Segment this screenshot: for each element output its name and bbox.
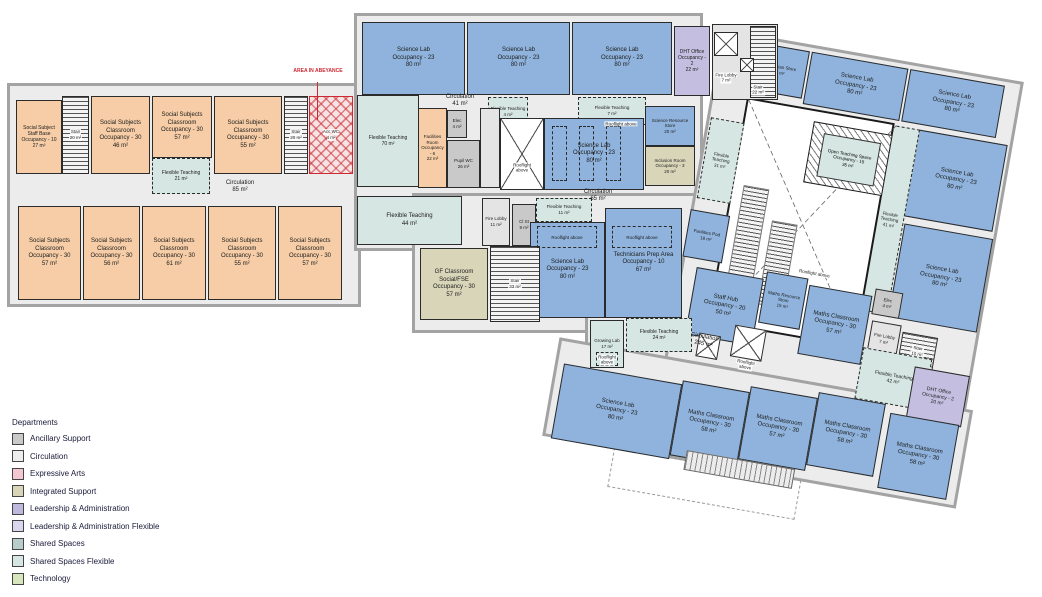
- room-label-line: 58 m²: [909, 459, 925, 469]
- legend-swatch: [12, 503, 24, 515]
- room-label-line: 80 m²: [607, 414, 623, 424]
- room-label-line: Science Lab: [551, 259, 584, 267]
- room-label-line: Social Subjects Classroom: [280, 238, 340, 253]
- lift-shaft-icon: [714, 32, 738, 56]
- room-label-line: 57 m²: [42, 261, 57, 269]
- room-flexible-teaching-24: Flexible Teaching24 m²: [626, 318, 692, 352]
- legend-swatch: [12, 555, 24, 567]
- room-label-line: 56 m²: [104, 261, 119, 269]
- room-label-line: 4 m²: [327, 135, 336, 141]
- room-label-line: 80 m²: [511, 62, 526, 70]
- rooflight-dashed-box: [552, 126, 567, 181]
- room-label-line: 18 m²: [700, 235, 712, 243]
- room-label-line: 20 m²: [930, 399, 944, 407]
- room-social-subjects-classroom-46: Social Subjects ClassroomOccupancy - 304…: [91, 96, 150, 174]
- locker-strip: [480, 108, 500, 188]
- room-label-line: 57 m²: [302, 261, 317, 269]
- room-label-line: 7 m²: [608, 111, 617, 117]
- room-label-line: Social Subjects Classroom: [144, 238, 204, 253]
- room-dht-office-22: DHT OfficeOccupancy - 222 m²: [674, 26, 710, 96]
- room-social-subjects-classroom-56: Social Subjects ClassroomOccupancy - 305…: [83, 206, 140, 300]
- room-label-line: 57 m²: [174, 135, 189, 143]
- room-label-line: Occupancy - 30: [99, 135, 141, 143]
- lift-shaft-icon: [695, 333, 721, 360]
- rooflight-dashed-box: [596, 352, 618, 366]
- room-maths-classroom-c: Maths ClassroomOccupancy - 3057 m²: [738, 386, 818, 471]
- room-label-line: 24 m²: [653, 335, 666, 341]
- room-label-line: 80 m²: [560, 274, 575, 282]
- legend-item-label: Technology: [30, 574, 70, 583]
- room-label-line: Rooflight above: [551, 235, 582, 240]
- room-label-line: Social Subjects Classroom: [216, 120, 280, 135]
- room-label-line: 27 m²: [33, 143, 46, 149]
- room-label-line: Science Lab: [397, 47, 430, 55]
- legend-item-integrated-support: Integrated Support: [12, 485, 159, 498]
- room-label-line: 46 m²: [113, 143, 128, 151]
- legend-item-label: Ancillary Support: [30, 434, 90, 443]
- abeyance-annotation: AREA IN ABEYANCE: [292, 68, 344, 75]
- room-label-line: 55 m²: [240, 143, 255, 151]
- room-fire-lobby-11: Fire Lobby11 m²: [482, 198, 510, 246]
- room-label-line: 4 m²: [882, 303, 892, 310]
- rooflight-void: [730, 325, 767, 362]
- room-social-subjects-classroom-55b: Social Subjects ClassroomOccupancy - 305…: [208, 206, 276, 300]
- room-label-line: 31 m²: [713, 162, 725, 170]
- room-label-line: 57 m²: [446, 292, 461, 300]
- room-label-line: 35 m²: [842, 161, 854, 168]
- legend-swatch: [12, 520, 24, 532]
- room-label-line: 80 m²: [846, 89, 862, 99]
- room-label-line: 33 m²: [508, 284, 522, 290]
- room-label-line: Science Resource Store: [647, 118, 693, 129]
- room-maths-classroom-a: Maths ClassroomOccupancy - 3057 m²: [797, 285, 872, 365]
- room-label-line: 7 m²: [879, 339, 889, 346]
- room-social-subjects-classroom-57c: Social Subjects ClassroomOccupancy - 305…: [278, 206, 342, 300]
- room-flexible-teaching-21: Flexible Teaching21 m²: [152, 158, 210, 194]
- room-label-line: 15 m²: [776, 302, 788, 310]
- room-label-line: 80 m²: [931, 280, 947, 290]
- room-label-line: 55 m²: [234, 261, 249, 269]
- rooflight-dashed-box: [606, 126, 621, 181]
- room-label-line: Occupancy - 6: [420, 145, 445, 156]
- lift-shaft-icon: [740, 58, 754, 72]
- room-flexible-teaching-70: Flexible Teaching70 m²: [357, 95, 419, 187]
- room-label-line: 22 m²: [686, 67, 699, 73]
- room-label-line: 20 m²: [664, 129, 676, 135]
- room-label-line: 67 m²: [636, 267, 651, 275]
- room-label-line: Occupancy - 30: [221, 253, 263, 261]
- room-label-line: 57 m²: [825, 327, 841, 337]
- legend-item-label: Circulation: [30, 452, 68, 461]
- room-label-line: 20 m²: [664, 169, 676, 175]
- room-science-resource-store: Science Resource Store20 m²: [645, 106, 695, 146]
- legend-item-expressive-arts: Expressive Arts: [12, 467, 159, 480]
- room-label-line: Occupancy - 30: [227, 135, 269, 143]
- room-facilities-pod: Facilities Pod18 m²: [682, 209, 730, 263]
- legend-item-label: Expressive Arts: [30, 469, 85, 478]
- room-label-line: 21 m²: [175, 176, 188, 182]
- room-technicians-prep-area: Technicians Prep AreaOccupancy - 1067 m²: [605, 208, 682, 318]
- legend-item-shared-spaces: Shared Spaces: [12, 537, 159, 550]
- room-label-line: 9 m²: [520, 225, 529, 231]
- room-area-in-abeyance: Acc WC4 m²: [309, 96, 353, 174]
- room-social-subjects-classroom-55a: Social Subjects ClassroomOccupancy - 305…: [214, 96, 282, 174]
- room-label-line: Social Subjects Classroom: [85, 238, 138, 253]
- room-label-line: Science Lab: [502, 47, 535, 55]
- legend-item-circulation: Circulation: [12, 450, 159, 463]
- legend-item-leadership-administration: Leadership & Administration: [12, 502, 159, 515]
- room-label-line: Flexible Teaching: [386, 213, 432, 221]
- room-label-line: 41 m²: [882, 222, 894, 230]
- room-open-teaching-space: Open Teaching SpaceOccupancy - 1535 m²: [816, 133, 881, 186]
- room-label-line: 4 m²: [504, 112, 513, 118]
- room-label-line: Social Subjects Classroom: [20, 238, 79, 253]
- legend-item-label: Leadership & Administration Flexible: [30, 522, 159, 531]
- room-label-line: 58 m²: [700, 426, 716, 436]
- room-inclusion-room: Inclusion RoomOccupancy - 320 m²: [645, 146, 695, 186]
- room-label-line: 11 m²: [558, 210, 569, 216]
- room-label-line: 80 m²: [614, 62, 629, 70]
- legend-swatch: [12, 468, 24, 480]
- room-science-lab-3: Science LabOccupancy - 2380 m²: [572, 22, 672, 95]
- room-label-line: 11 m²: [490, 222, 501, 228]
- legend-item-label: Shared Spaces: [30, 539, 85, 548]
- room-social-subjects-classroom-57b: Social Subjects ClassroomOccupancy - 305…: [18, 206, 81, 300]
- rooflight-dashed-box: Rooflight above: [612, 226, 672, 248]
- room-label-line: 44 m²: [402, 221, 417, 229]
- legend-swatch: [12, 485, 24, 497]
- room-label-line: 61 m²: [166, 261, 181, 269]
- room-label-line: Facilities Room: [420, 134, 445, 145]
- room-facilities-room: Facilities RoomOccupancy - 622 m²: [418, 108, 447, 188]
- room-label-line: Occupancy - 30: [161, 127, 203, 135]
- room-label-line: Occupancy - 2: [676, 55, 708, 68]
- room-label-line: 17 m²: [601, 344, 613, 350]
- room-label-line: 20 m²: [289, 135, 303, 141]
- room-label-line: Occupancy - 10: [622, 259, 664, 267]
- room-science-lab-d: Science LabOccupancy - 2380 m²: [888, 223, 993, 332]
- rooflight-void: [500, 118, 544, 190]
- room-social-subject-staff-base: Social Subject Staff BaseOccupancy - 102…: [16, 100, 62, 174]
- room-flexible-teaching-44: Flexible Teaching44 m²: [357, 196, 462, 245]
- room-social-subjects-classroom-61: Social Subjects ClassroomOccupancy - 306…: [142, 206, 206, 300]
- room-science-lab-c: Science LabOccupancy - 2380 m²: [904, 130, 1008, 232]
- legend-swatch: [12, 573, 24, 585]
- room-label-line: Technicians Prep Area: [614, 252, 674, 260]
- room-maths-resource-store: Maths Resource Store15 m²: [758, 271, 808, 330]
- room-label-line: 70 m²: [382, 141, 395, 147]
- room-label-line: 80 m²: [944, 106, 960, 116]
- room-label-line: Social Subjects Classroom: [210, 238, 274, 253]
- room-social-subjects-classroom-57a: Social Subjects ClassroomOccupancy - 305…: [152, 96, 212, 158]
- rooflight-dashed-box: [579, 126, 594, 181]
- room-gf-classroom-social-fse: GF Classroom Social/FSEOccupancy - 3057 …: [420, 248, 488, 320]
- room-pupil-wc: Pupil WC26 m²: [447, 140, 480, 188]
- room-elec-4b: Elec4 m²: [871, 288, 903, 318]
- abeyance-leader-line: [317, 82, 318, 120]
- room-label-line: GF Classroom Social/FSE: [422, 269, 486, 284]
- room-label-line: Occupancy - 30: [153, 253, 195, 261]
- room-label-line: Occupancy - 23: [601, 55, 643, 63]
- room-stair-33: Stair33 m²: [490, 246, 540, 322]
- room-maths-classroom-e: Maths ClassroomOccupancy - 3058 m²: [877, 413, 959, 500]
- room-label-line: 4 m²: [453, 124, 462, 130]
- legend: Departments Ancillary Support Circulatio…: [12, 418, 159, 585]
- room-label-line: 80 m²: [946, 183, 962, 193]
- room-label-line: Social Subjects Classroom: [154, 112, 210, 127]
- legend-item-label: Integrated Support: [30, 487, 96, 496]
- legend-title: Departments: [12, 418, 159, 427]
- room-label-line: Occupancy - 30: [28, 253, 70, 261]
- legend-swatch: [12, 433, 24, 445]
- room-flexible-teaching-11: Flexible Teaching11 m²: [536, 198, 592, 222]
- room-label-line: Occupancy - 30: [433, 284, 475, 292]
- room-maths-classroom-d: Maths ClassroomOccupancy - 3058 m²: [806, 392, 886, 477]
- room-stair-left-1: Stair20 m²: [62, 96, 89, 174]
- room-label-line: Occupancy - 30: [90, 253, 132, 261]
- room-label-line: Social Subjects Classroom: [93, 120, 148, 135]
- legend-item-shared-spaces-flexible: Shared Spaces Flexible: [12, 555, 159, 568]
- room-science-lab-2: Science LabOccupancy - 2380 m²: [467, 22, 570, 95]
- room-label-line: 26 m²: [458, 164, 470, 170]
- room-label-line: 42 m²: [886, 378, 900, 386]
- room-science-lab-1: Science LabOccupancy - 2380 m²: [362, 22, 465, 95]
- legend-item-label: Leadership & Administration: [30, 504, 130, 513]
- room-label-line: Occupancy - 23: [546, 266, 588, 274]
- room-label-line: 58 m²: [836, 437, 852, 447]
- floor-plan-canvas: Social Subject Staff BaseOccupancy - 102…: [0, 0, 1042, 597]
- legend-item-leadership-administration-flexible: Leadership & Administration Flexible: [12, 520, 159, 533]
- room-label-line: Social Subject Staff Base: [18, 125, 60, 138]
- room-label-line: 22 m²: [427, 156, 439, 162]
- legend-item-technology: Technology: [12, 572, 159, 585]
- room-label-line: Occupancy - 23: [392, 55, 434, 63]
- legend-swatch: [12, 538, 24, 550]
- room-label-line: Occupancy - 23: [497, 55, 539, 63]
- room-label-line: 50 m²: [715, 309, 731, 319]
- legend-item-label: Shared Spaces Flexible: [30, 557, 115, 566]
- room-label-line: 57 m²: [768, 431, 784, 441]
- legend-swatch: [12, 450, 24, 462]
- room-label-line: 20 m²: [69, 135, 83, 141]
- room-label-line: Occupancy - 30: [289, 253, 331, 261]
- rooflight-dashed-box: Rooflight above: [537, 226, 597, 248]
- room-stair-left-2: Stair20 m²: [284, 96, 308, 174]
- legend-item-ancillary-support: Ancillary Support: [12, 432, 159, 445]
- room-label-line: 80 m²: [406, 62, 421, 70]
- room-elec-4a: Elec4 m²: [447, 110, 467, 138]
- room-label-line: Science Lab: [605, 47, 638, 55]
- room-label-line: Rooflight above: [626, 235, 657, 240]
